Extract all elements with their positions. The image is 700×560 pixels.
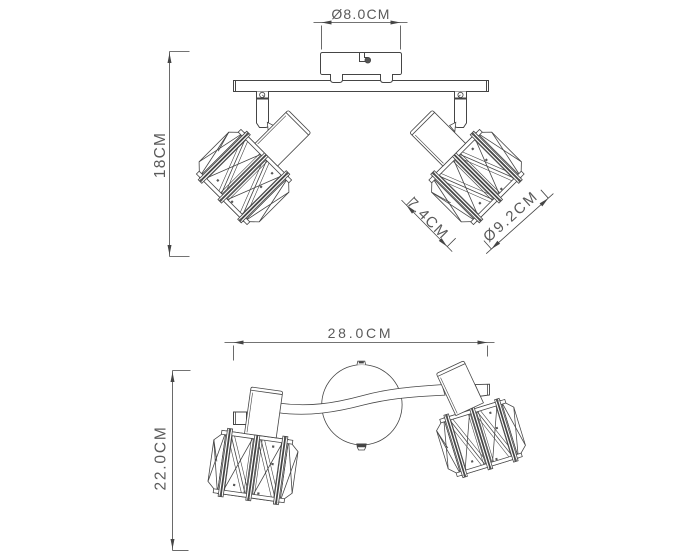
svg-text:22.0CM: 22.0CM [153,425,170,490]
svg-text:18CM: 18CM [152,132,169,178]
svg-text:28.0CM: 28.0CM [328,325,394,341]
svg-text:Ø8.0CM: Ø8.0CM [331,6,390,22]
